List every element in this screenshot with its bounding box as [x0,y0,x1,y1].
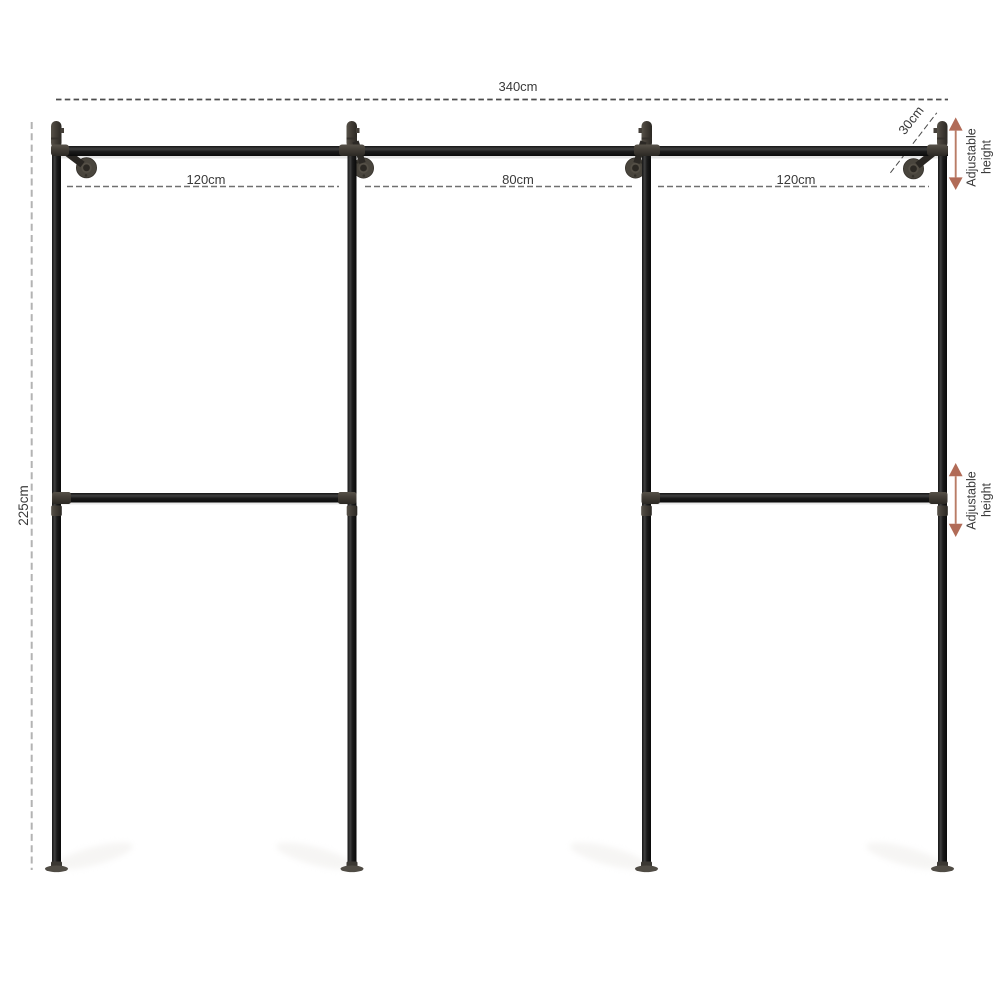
svg-text:120cm: 120cm [776,172,815,187]
svg-text:340cm: 340cm [498,79,537,94]
svg-text:height: height [980,139,994,174]
svg-text:120cm: 120cm [186,172,225,187]
svg-text:80cm: 80cm [502,172,534,187]
svg-text:height: height [980,482,994,517]
svg-text:Adjustable: Adjustable [964,128,978,186]
svg-text:Adjustable: Adjustable [964,471,978,529]
svg-text:225cm: 225cm [16,485,31,526]
